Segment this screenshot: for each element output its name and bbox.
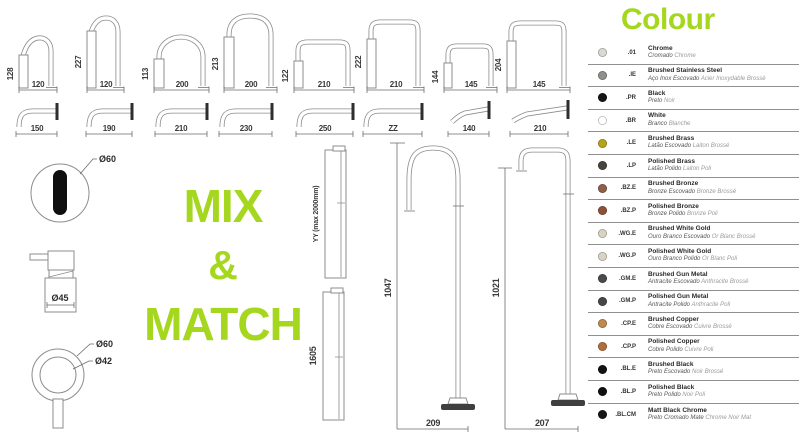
colour-code: .BZ.E <box>610 185 636 191</box>
colour-subtitle: Latão Polido Laiton Poli <box>648 166 711 174</box>
spout-diagram-6: 222 210 <box>354 22 424 93</box>
colour-swatch <box>598 387 607 396</box>
spout-body <box>87 31 96 88</box>
legend-row: .BR White Branco Blanche <box>588 110 799 133</box>
colour-code: .BL.P <box>610 389 636 395</box>
catalogue-page: 128 120 227 120 113 200 <box>0 0 800 434</box>
colour-name: Black <box>648 90 675 98</box>
height-label: 1021 <box>491 278 501 297</box>
colour-swatch <box>598 252 607 261</box>
colour-name: Polished Gun Metal <box>648 293 730 301</box>
legend-row: .WG.P Polished White Gold Ouro Branco Po… <box>588 245 799 268</box>
spout-diagram-3: 113 200 <box>141 37 209 93</box>
colour-code: .BR <box>610 118 636 124</box>
colour-name-pt: Aço Inox Escovado <box>648 76 699 82</box>
colour-name: Brushed Gun Metal <box>648 271 749 279</box>
diameter-label: Ø45 <box>51 293 68 303</box>
knob-inner <box>40 357 76 393</box>
colour-subtitle: Latão Escovado Laiton Brossé <box>648 143 729 151</box>
mixer-handle-diagram: Ø45 <box>30 251 76 312</box>
tube-outline <box>159 37 203 86</box>
legend-row: .IE Brushed Stainless Steel Aço Inox Esc… <box>588 65 799 88</box>
width-label: 140 <box>463 124 476 133</box>
height-label: 213 <box>211 57 220 70</box>
legend-row: .BL.CM Matt Black Chrome Preto Cromado M… <box>588 404 799 427</box>
colour-swatch <box>598 319 607 328</box>
colour-code: .WG.P <box>610 253 636 259</box>
colour-name: Polished Black <box>648 384 705 392</box>
colour-name-fr: Bronze Poli <box>687 211 718 217</box>
width-label: 210 <box>390 80 403 89</box>
colour-subtitle: Bronze Polido Bronze Poli <box>648 211 718 219</box>
width-label: 120 <box>32 80 45 89</box>
legend-row: .PR Black Preto Noir <box>588 87 799 110</box>
colour-subtitle: Cobre Escovado Cuivre Brossé <box>648 324 732 332</box>
spout-body <box>224 37 234 88</box>
colour-code: .GM.P <box>610 298 636 304</box>
height-label: 1047 <box>383 278 393 297</box>
colour-legend: Colour .01 Chrome Cromado Chrome .IE Bru… <box>588 0 799 434</box>
height-label: 1605 <box>308 346 318 365</box>
colour-name-pt: Bronze Escovado <box>648 189 695 195</box>
floor-spout-diagram-2: 1021 207 <box>491 150 585 432</box>
colour-swatch <box>598 342 607 351</box>
legend-row: .WG.E Brushed White Gold Ouro Branco Esc… <box>588 223 799 246</box>
colour-subtitle: Ouro Branco Escovado Or Blanc Brossé <box>648 234 755 242</box>
colour-code: .GM.E <box>610 276 636 282</box>
legend-row: .GM.P Polished Gun Metal Antracite Polid… <box>588 291 799 314</box>
colour-name: Polished Copper <box>648 338 713 346</box>
width-label: 190 <box>103 124 116 133</box>
colour-name-fr: Noir Brossé <box>692 369 723 375</box>
legend-row: .LE Brushed Brass Latão Escovado Laiton … <box>588 132 799 155</box>
colour-code: .CP.E <box>610 321 636 327</box>
flange-neck <box>558 394 578 400</box>
colour-code: .BL.E <box>610 366 636 372</box>
floor-flange <box>551 400 585 406</box>
slogan-line-mix: MIX <box>128 183 318 229</box>
spout-diagram-4: 213 200 <box>211 16 277 93</box>
width-label: 120 <box>100 80 113 89</box>
colour-subtitle: Antracite Polido Anthracite Poli <box>648 302 730 310</box>
width-label: 200 <box>176 80 189 89</box>
colour-subtitle: Preto Noir <box>648 98 675 106</box>
tube-outline <box>521 150 568 400</box>
colour-swatch <box>598 93 607 102</box>
diameter-label-inner: Ø42 <box>95 356 112 366</box>
diameter-label-outer: Ø60 <box>96 339 113 349</box>
height-label: 227 <box>74 55 83 68</box>
colour-name-pt: Cobre Escovado <box>648 324 692 330</box>
width-label: 210 <box>318 80 331 89</box>
sensor-plate-diagram: Ø60 <box>31 154 116 222</box>
height-label: 222 <box>354 55 363 68</box>
colour-legend-title: Colour <box>588 0 799 37</box>
colour-name-pt: Latão Polido <box>648 166 681 172</box>
colour-name-fr: Anthracite Brossé <box>701 279 748 285</box>
colour-name-pt: Antracite Escovado <box>648 279 700 285</box>
wall-spout-diagram-2: 190 <box>86 103 132 137</box>
legend-row: .GM.E Brushed Gun Metal Antracite Escova… <box>588 268 799 291</box>
colour-name: White <box>648 112 690 120</box>
colour-subtitle: Antracite Escovado Anthracite Brossé <box>648 279 749 287</box>
floor-spout-diagram-1: 1047 209 <box>383 143 475 432</box>
column-outline <box>323 292 344 420</box>
height-label: 122 <box>281 69 290 82</box>
mix-and-match-slogan: MIX & MATCH <box>128 183 318 347</box>
width-label: 210 <box>534 124 547 133</box>
colour-subtitle: Preto Polido Noir Poli <box>648 392 705 400</box>
colour-name-pt: Preto Polido <box>648 392 681 398</box>
colour-name-pt: Preto Cromado Mate <box>648 415 704 421</box>
joint-ticks <box>516 171 574 194</box>
spout-diagram-8: 204 145 <box>494 23 570 93</box>
colour-name-fr: Noir Poli <box>682 392 705 398</box>
width-label: 210 <box>175 124 188 133</box>
colour-name-fr: Bronze Brossé <box>697 189 736 195</box>
colour-swatch <box>598 206 607 215</box>
slogan-line-match: MATCH <box>128 301 318 347</box>
legend-row: .CP.P Polished Copper Cobre Polido Cuivr… <box>588 336 799 359</box>
column-cap <box>331 288 343 293</box>
height-label: 144 <box>431 70 440 83</box>
colour-name-pt: Preto <box>648 98 662 104</box>
flange-neck <box>448 398 468 404</box>
colour-subtitle: Preto Escovado Noir Brossé <box>648 369 723 377</box>
height-label: 113 <box>141 67 150 80</box>
colour-swatch <box>598 71 607 80</box>
colour-name-fr: Or Blanc Brossé <box>712 234 756 240</box>
width-label: ZZ <box>388 124 398 133</box>
knob-stem <box>53 399 63 428</box>
colour-name: Chrome <box>648 45 696 53</box>
colour-code: .IE <box>610 72 636 78</box>
floor-flange <box>441 404 475 410</box>
colour-name: Brushed Stainless Steel <box>648 67 766 75</box>
legend-row: .CP.E Brushed Copper Cobre Escovado Cuiv… <box>588 313 799 336</box>
colour-name-pt: Ouro Branco Polido <box>648 256 700 262</box>
width-label: 150 <box>31 124 44 133</box>
legend-row: .01 Chrome Cromado Chrome <box>588 42 799 65</box>
colour-name-pt: Cobre Polido <box>648 347 683 353</box>
handle-head <box>48 251 74 270</box>
colour-subtitle: Ouro Branco Polido Or Blanc Poli <box>648 256 737 264</box>
colour-name-pt: Branco <box>648 121 667 127</box>
width-label: 145 <box>533 80 546 89</box>
sensor-window <box>53 170 67 215</box>
wall-spout-diagram-4: 230 <box>219 103 272 137</box>
spout-diagram-1: 128 120 <box>6 38 57 93</box>
colour-swatch <box>598 229 607 238</box>
colour-name: Matt Black Chrome <box>648 407 751 415</box>
column-outline <box>325 150 346 278</box>
tube-outline <box>511 23 564 86</box>
width-label: 230 <box>240 124 253 133</box>
colour-code: .PR <box>610 95 636 101</box>
spout-body <box>294 61 303 88</box>
colour-name-pt: Ouro Branco Escovado <box>648 234 710 240</box>
wall-spout-diagram-3: 210 <box>155 103 207 137</box>
wall-spout-diagram-7: 140 <box>448 101 489 137</box>
colour-name-pt: Preto Escovado <box>648 369 690 375</box>
colour-swatch <box>598 161 607 170</box>
colour-name-pt: Cromado <box>648 53 673 59</box>
colour-swatch <box>598 48 607 57</box>
spout-body <box>444 63 452 88</box>
colour-name: Polished White Gold <box>648 248 737 256</box>
spout-body <box>154 59 164 88</box>
colour-subtitle: Bronze Escovado Bronze Brossé <box>648 189 736 197</box>
colour-name-fr: Cuivre Brossé <box>694 324 732 330</box>
colour-name: Brushed Brass <box>648 135 729 143</box>
colour-subtitle: Aço Inox Escovado Acier Inoxydable Bross… <box>648 76 766 84</box>
tube-outline <box>229 16 271 86</box>
wall-spout-diagram-1: 150 <box>16 103 57 137</box>
colour-code: .WG.E <box>610 231 636 237</box>
wall-spout-diagram-6: ZZ <box>363 103 422 137</box>
colour-name: Brushed Bronze <box>648 180 736 188</box>
colour-swatch <box>598 410 607 419</box>
tube-outline <box>371 22 418 86</box>
spout-body <box>19 55 28 88</box>
spout-diagram-7: 144 145 <box>431 46 497 93</box>
legend-row: .LP Polished Brass Latão Polido Laiton P… <box>588 155 799 178</box>
colour-swatch <box>598 139 607 148</box>
colour-code: .LE <box>610 140 636 146</box>
colour-name: Brushed Copper <box>648 316 732 324</box>
tube-outline <box>409 148 458 404</box>
colour-subtitle: Branco Blanche <box>648 121 690 129</box>
spout-body <box>367 39 376 88</box>
colour-name: Polished Brass <box>648 158 711 166</box>
colour-name-pt: Latão Escovado <box>648 143 691 149</box>
colour-swatch <box>598 274 607 283</box>
height-label: 128 <box>6 67 15 80</box>
spout-body <box>507 41 516 88</box>
handle-lever <box>30 254 49 260</box>
colour-subtitle: Cromado Chrome <box>648 53 696 61</box>
colour-name-fr: Noir <box>664 98 675 104</box>
colour-swatch <box>598 297 607 306</box>
leader-line-outer <box>77 344 94 356</box>
legend-row: .BZ.P Polished Bronze Bronze Polido Bron… <box>588 200 799 223</box>
colour-code: .BL.CM <box>610 412 636 418</box>
colour-name-fr: Laiton Brossé <box>693 143 730 149</box>
wall-spout-diagram-8: 210 <box>510 100 568 137</box>
legend-row: .BL.P Polished Black Preto Polido Noir P… <box>588 381 799 404</box>
colour-name: Brushed White Gold <box>648 225 755 233</box>
colour-name: Polished Bronze <box>648 203 718 211</box>
colour-swatch <box>598 116 607 125</box>
spout-diagram-5: 122 210 <box>281 42 354 93</box>
spout-diagram-2: 227 120 <box>74 18 124 93</box>
colour-name-fr: Laiton Poli <box>683 166 711 172</box>
slogan-ampersand: & <box>128 245 318 286</box>
colour-code: .CP.P <box>610 344 636 350</box>
legend-row: .BZ.E Brushed Bronze Bronze Escovado Bro… <box>588 178 799 201</box>
colour-name-fr: Blanche <box>669 121 691 127</box>
colour-name-fr: Chrome <box>674 53 695 59</box>
colour-subtitle: Cobre Polido Cuivre Poli <box>648 347 713 355</box>
colour-name-pt: Antracite Polido <box>648 302 690 308</box>
colour-code: .BZ.P <box>610 208 636 214</box>
colour-name: Brushed Black <box>648 361 723 369</box>
joint-ticks <box>404 206 464 211</box>
legend-row: .BL.E Brushed Black Preto Escovado Noir … <box>588 358 799 381</box>
colour-name-fr: Or Blanc Poli <box>702 256 737 262</box>
colour-name-fr: Anthracite Poli <box>691 302 730 308</box>
wall-spout-diagram-5: 250 <box>296 103 353 137</box>
colour-name-fr: Acier Inoxydable Brossé <box>701 76 766 82</box>
width-label: 250 <box>319 124 332 133</box>
tube-outline <box>513 108 567 121</box>
width-label: 207 <box>535 418 549 428</box>
colour-name-fr: Cuivre Poli <box>684 347 713 353</box>
colour-legend-rows: .01 Chrome Cromado Chrome .IE Brushed St… <box>588 42 799 426</box>
leader-line <box>80 159 97 174</box>
diameter-label: Ø60 <box>99 154 116 164</box>
colour-swatch <box>598 365 607 374</box>
column-cap <box>333 146 345 151</box>
width-label: 145 <box>465 80 478 89</box>
colour-code: .01 <box>610 50 636 56</box>
colour-code: .LP <box>610 163 636 169</box>
colour-swatch <box>598 184 607 193</box>
colour-name-pt: Bronze Polido <box>648 211 685 217</box>
height-label: 204 <box>494 58 503 71</box>
tube-outline <box>452 109 488 122</box>
colour-subtitle: Preto Cromado Mate Chrome Noir Mat <box>648 415 751 423</box>
width-label: 209 <box>426 418 440 428</box>
knob-top-view-diagram: Ø60 Ø42 <box>32 339 113 428</box>
width-label: 200 <box>245 80 258 89</box>
colour-name-fr: Chrome Noir Mat <box>705 415 751 421</box>
